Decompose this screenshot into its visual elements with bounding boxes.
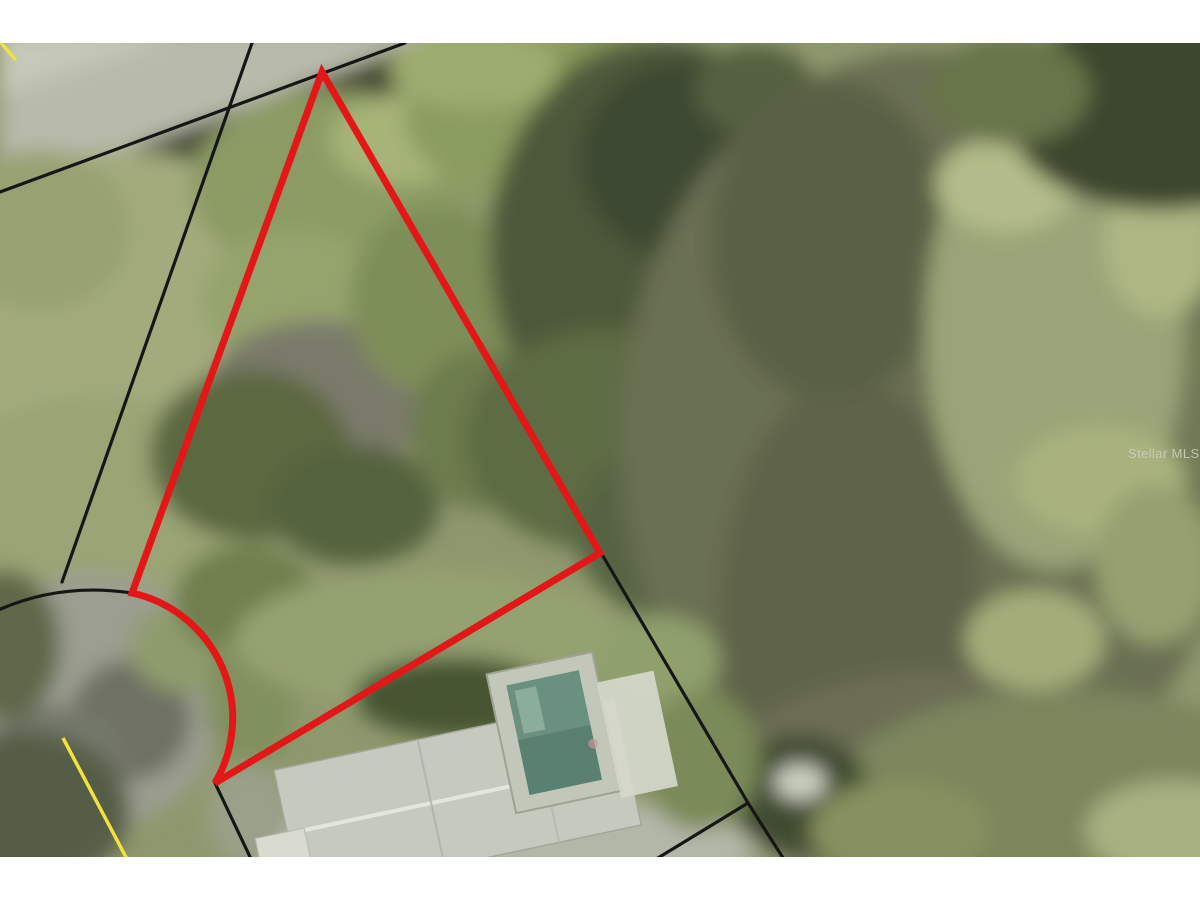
- aerial-photo: Stellar MLS: [0, 43, 1200, 857]
- listing-photo-page: Stellar MLS: [0, 0, 1200, 900]
- aerial-photo-svg: Stellar MLS: [0, 43, 1200, 857]
- stellar-mls-watermark: Stellar MLS: [1128, 446, 1200, 461]
